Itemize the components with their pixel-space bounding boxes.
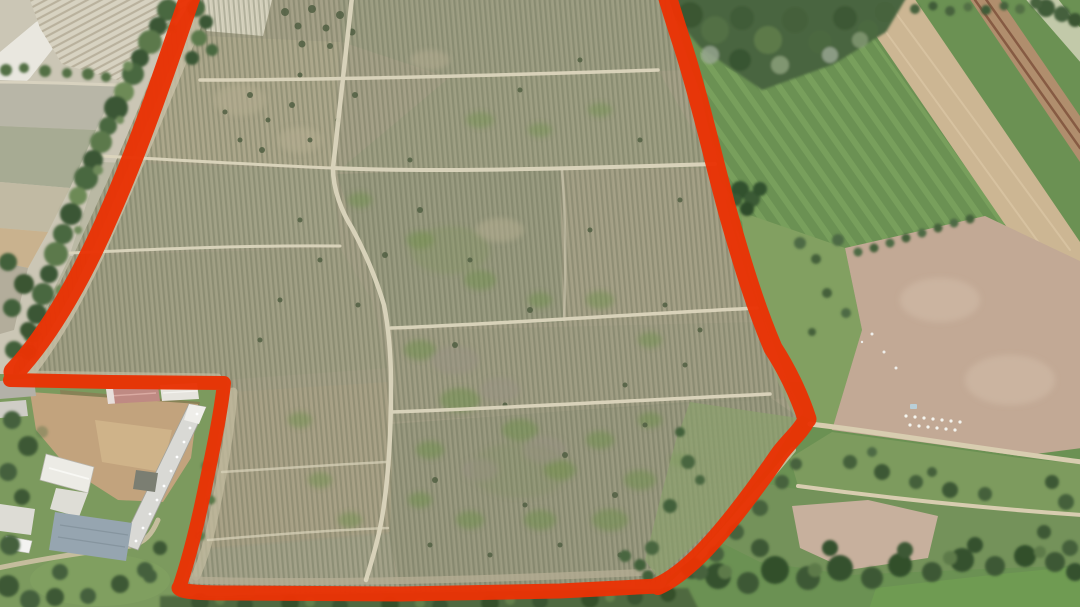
small-white-building	[0, 504, 35, 535]
aerial-photo	[0, 0, 1080, 607]
small-blue-structure	[910, 404, 917, 409]
dark-shed	[133, 470, 158, 492]
boundary-bottom-band	[179, 586, 658, 594]
bare-field-mid-right	[832, 216, 1080, 456]
